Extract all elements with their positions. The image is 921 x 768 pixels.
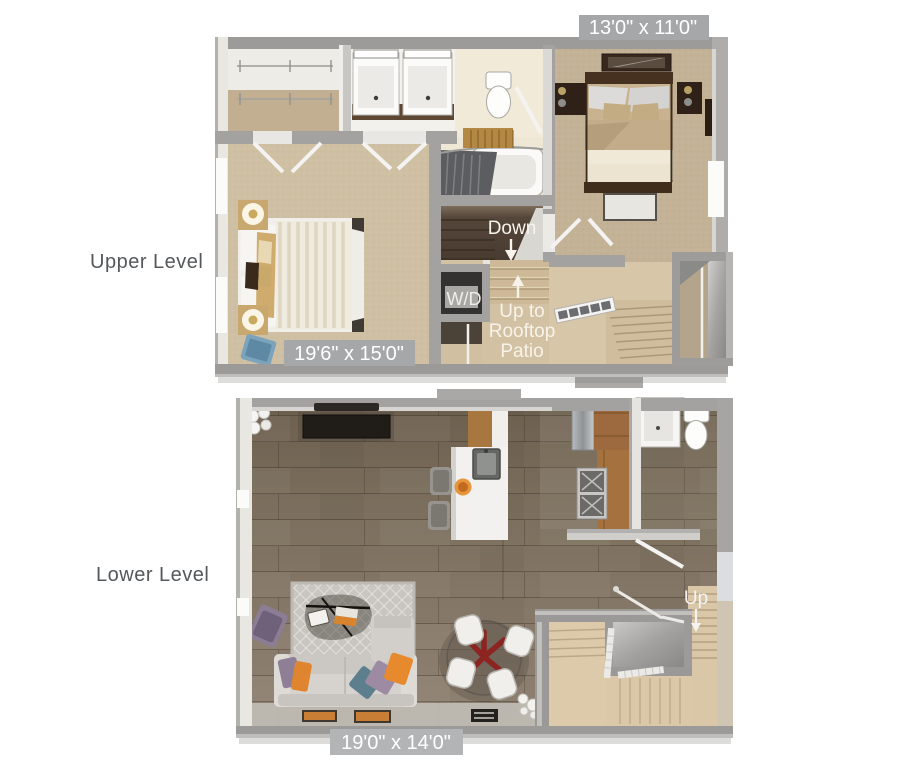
svg-text:W/D: W/D (447, 289, 482, 309)
svg-text:Upper Level: Upper Level (90, 251, 203, 273)
svg-text:Up to: Up to (499, 301, 544, 322)
svg-text:Up: Up (684, 588, 708, 609)
svg-text:13'0" x 11'0": 13'0" x 11'0" (589, 17, 697, 39)
svg-text:Lower Level: Lower Level (96, 564, 209, 586)
svg-text:Rooftop: Rooftop (489, 321, 556, 342)
svg-text:Patio: Patio (500, 341, 543, 362)
svg-text:Down: Down (488, 218, 537, 239)
svg-text:19'0" x 14'0": 19'0" x 14'0" (341, 732, 451, 754)
svg-text:19'6" x 15'0": 19'6" x 15'0" (294, 343, 404, 365)
